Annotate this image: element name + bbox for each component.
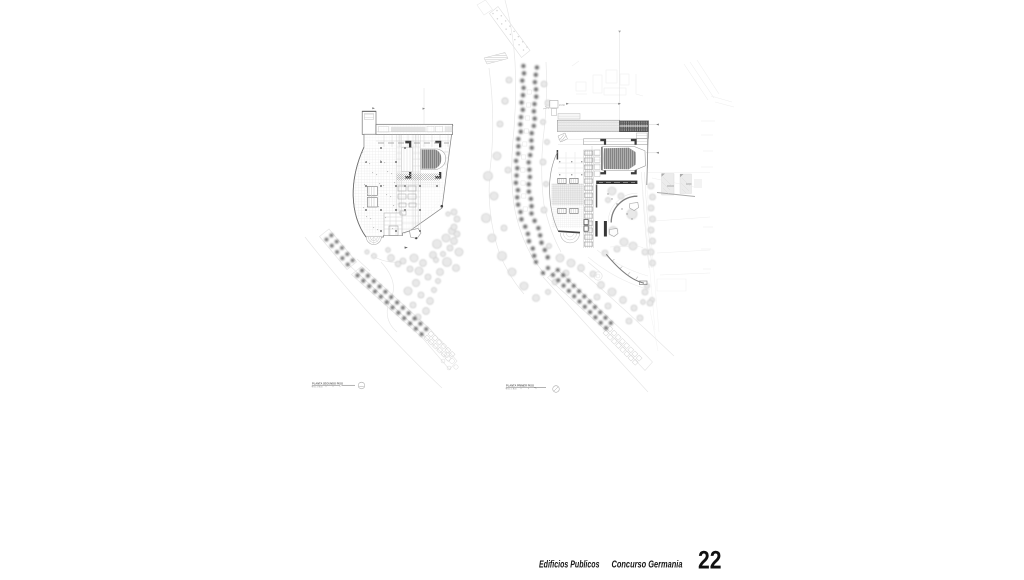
svg-text:ESC 1:500: ESC 1:500 — [506, 388, 517, 390]
svg-text:PLANTA SEGUNDO PISO: PLANTA SEGUNDO PISO — [312, 382, 343, 386]
svg-text:ESC 1:500: ESC 1:500 — [312, 386, 323, 388]
svg-text:PLANTA PRIMER PISO: PLANTA PRIMER PISO — [506, 384, 534, 388]
svg-text:23.60: 23.60 — [559, 105, 565, 107]
svg-text:Edificios Publicos: Edificios Publicos — [539, 560, 600, 571]
svg-text:Concurso Germania: Concurso Germania — [612, 560, 683, 571]
svg-text:22: 22 — [698, 547, 722, 575]
